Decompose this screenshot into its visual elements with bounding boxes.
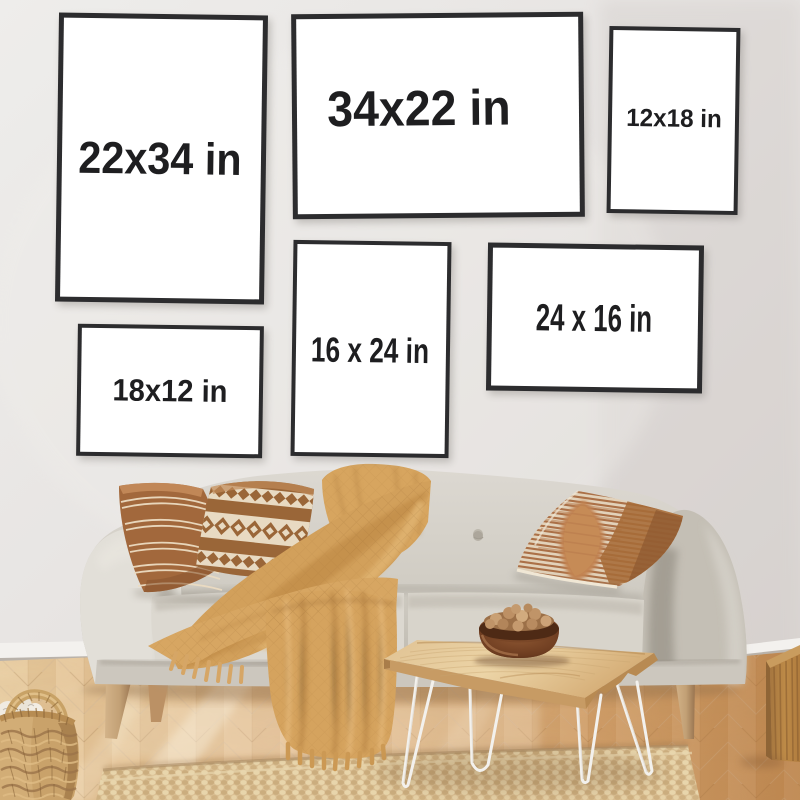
svg-text:16 x 24 in: 16 x 24 in xyxy=(311,330,430,371)
svg-text:22x34 in: 22x34 in xyxy=(78,133,242,185)
svg-text:18x12 in: 18x12 in xyxy=(112,374,227,410)
svg-text:24 x 16 in: 24 x 16 in xyxy=(536,296,653,340)
svg-text:34x22 in: 34x22 in xyxy=(327,80,511,138)
svg-text:12x18 in: 12x18 in xyxy=(626,105,722,134)
